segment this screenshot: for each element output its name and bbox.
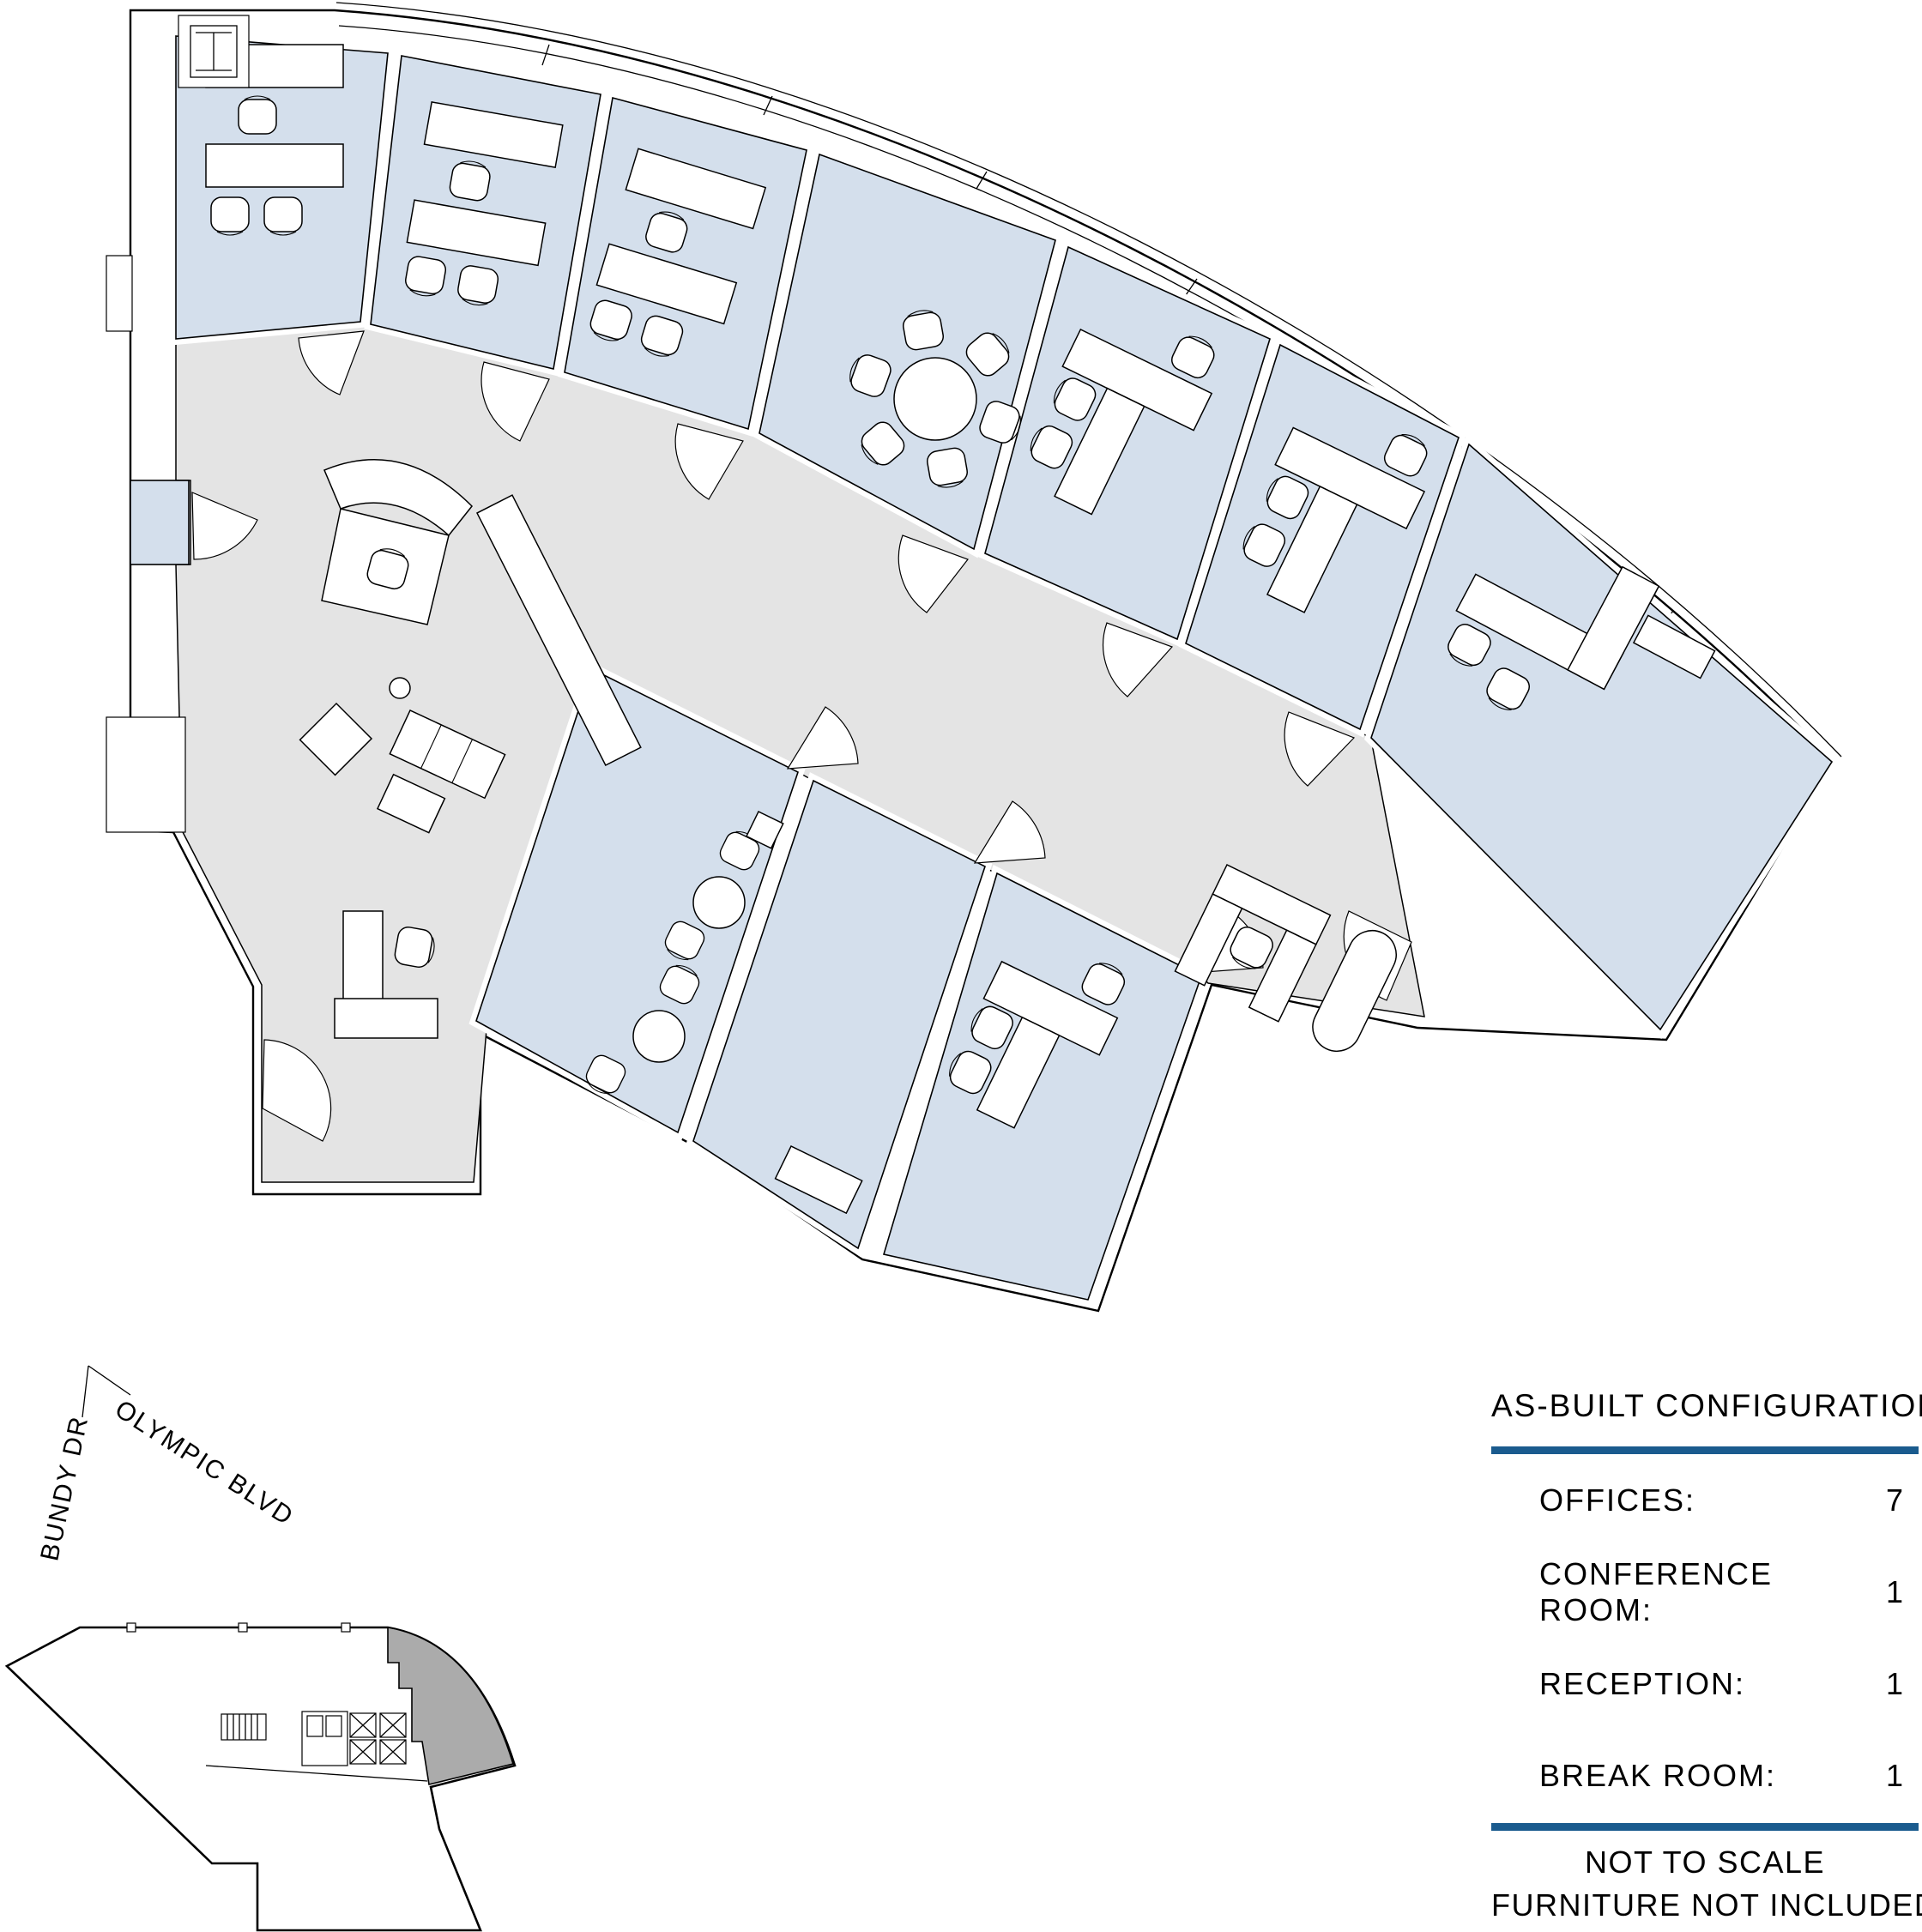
legend-row-conference: CONFERENCE ROOM: 1 xyxy=(1491,1546,1919,1638)
floor-plan-sheet: BUNDY DR OLYMPIC BLVD AS-BUILT CONFIGURA… xyxy=(0,0,1922,1932)
legend-label: RECEPTION: xyxy=(1539,1666,1745,1702)
legend-title: AS-BUILT CONFIGURATION xyxy=(1491,1388,1919,1424)
legend-value: 7 xyxy=(1886,1482,1905,1518)
legend-rule-bottom xyxy=(1491,1823,1919,1831)
legend-notes: NOT TO SCALE FURNITURE NOT INCLUDED xyxy=(1491,1841,1919,1927)
legend-value: 1 xyxy=(1886,1574,1905,1610)
cafe-table xyxy=(633,1011,685,1062)
note-not-to-scale: NOT TO SCALE xyxy=(1491,1841,1919,1884)
legend-label: CONFERENCE ROOM: xyxy=(1539,1556,1886,1628)
legend-label: BREAK ROOM: xyxy=(1539,1758,1776,1794)
legend-rule-top xyxy=(1491,1446,1919,1454)
keyplan xyxy=(0,1596,549,1932)
legend-value: 1 xyxy=(1886,1758,1905,1794)
column-symbol xyxy=(178,15,249,88)
legend-value: 1 xyxy=(1886,1666,1905,1702)
note-furniture: FURNITURE NOT INCLUDED xyxy=(1491,1884,1919,1927)
conference-table xyxy=(894,358,976,440)
entry-vestibule xyxy=(130,480,189,565)
cafe-table xyxy=(693,877,745,928)
legend: AS-BUILT CONFIGURATION OFFICES: 7 CONFER… xyxy=(1491,1388,1919,1927)
legend-row-offices: OFFICES: 7 xyxy=(1491,1454,1919,1546)
legend-row-reception: RECEPTION: 1 xyxy=(1491,1638,1919,1730)
side-table xyxy=(390,678,410,698)
legend-label: OFFICES: xyxy=(1539,1482,1695,1518)
legend-row-breakroom: BREAK ROOM: 1 xyxy=(1491,1730,1919,1821)
main-floor-plan xyxy=(0,0,1922,1373)
